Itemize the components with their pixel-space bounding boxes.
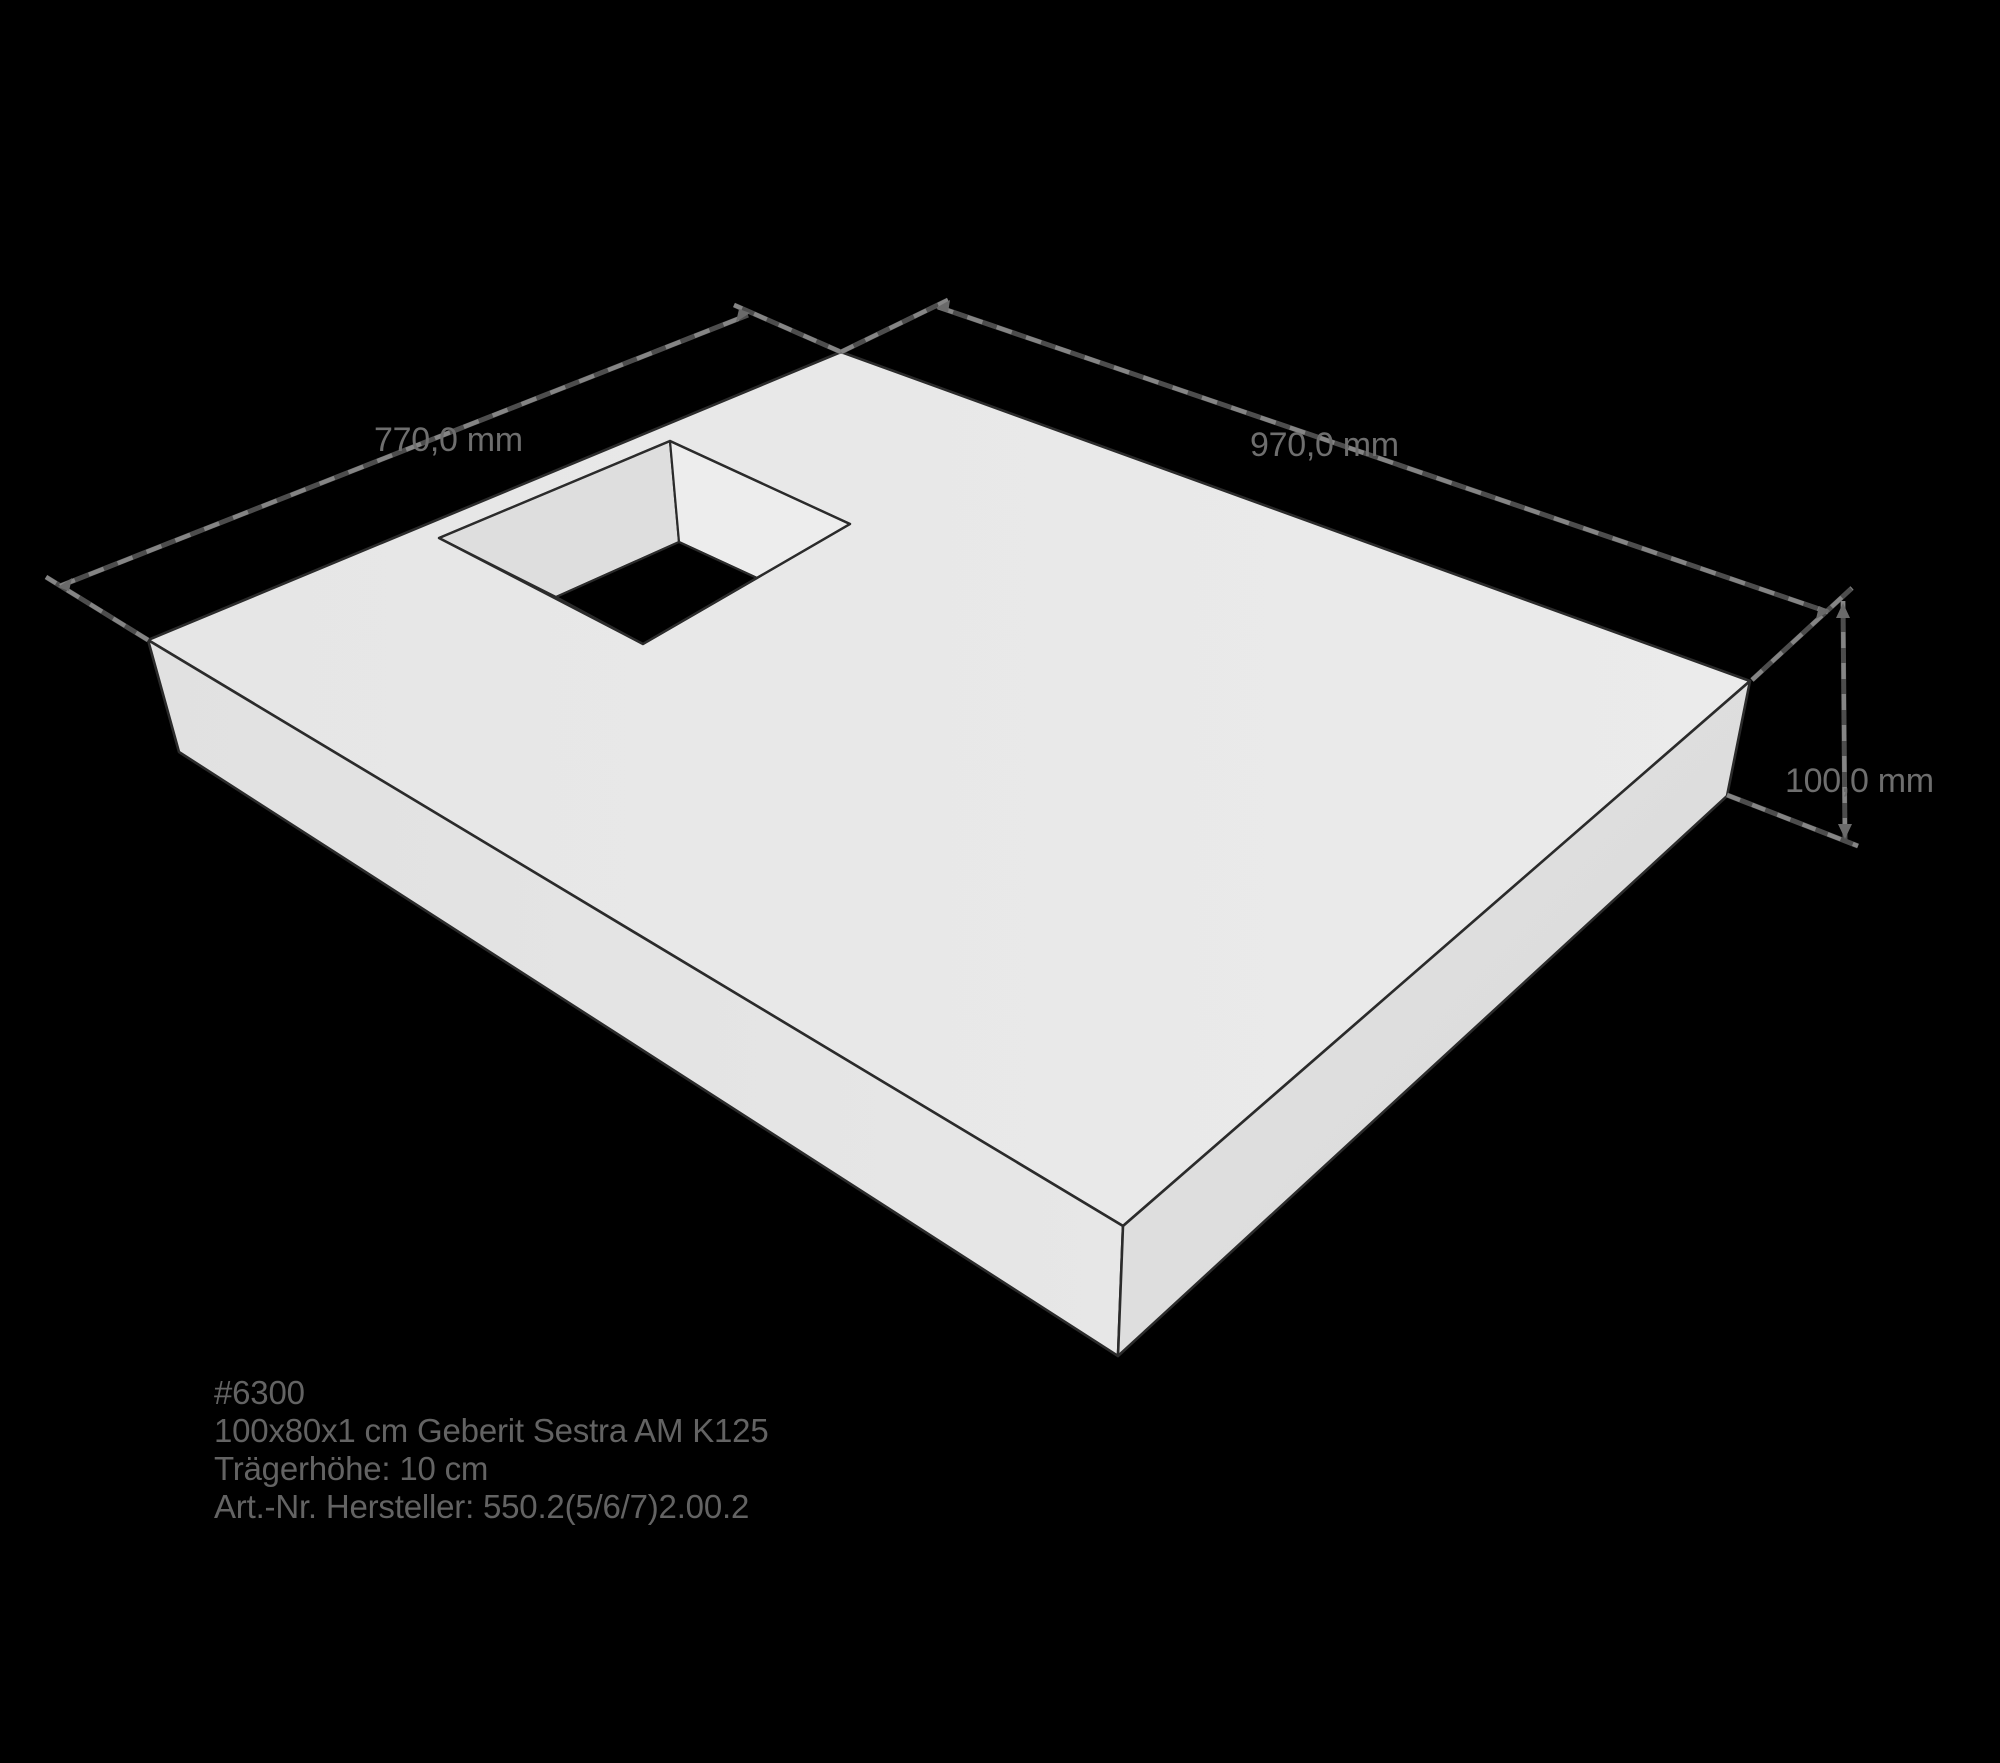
svg-text:100x80x1 cm Geberit Sestra AM: 100x80x1 cm Geberit Sestra AM K125 [214,1412,769,1449]
svg-text:770,0 mm: 770,0 mm [374,421,523,459]
svg-text:100,0 mm: 100,0 mm [1785,762,1934,800]
svg-text:Trägerhöhe: 10 cm: Trägerhöhe: 10 cm [214,1450,488,1487]
svg-text:#6300: #6300 [214,1374,305,1411]
svg-text:Art.-Nr. Hersteller: 550.2(5/6: Art.-Nr. Hersteller: 550.2(5/6/7)2.00.2 [214,1488,749,1525]
svg-text:970,0 mm: 970,0 mm [1250,426,1399,464]
